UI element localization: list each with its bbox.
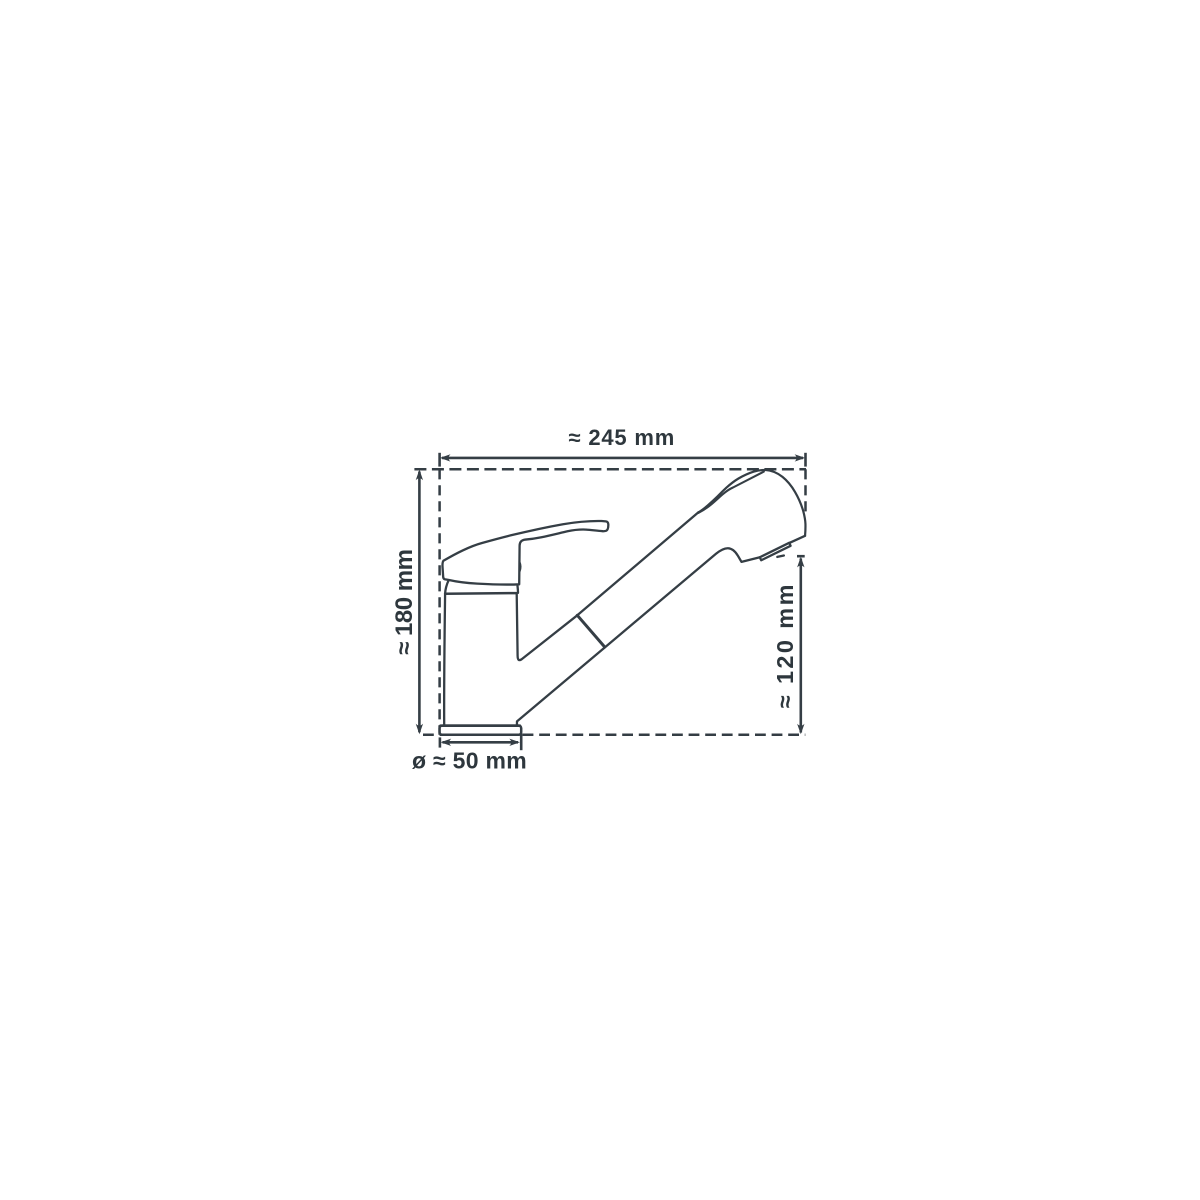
svg-text:≈ 120 mm: ≈ 120 mm — [772, 582, 798, 708]
svg-text:≈ 180 mm: ≈ 180 mm — [391, 550, 418, 655]
svg-text:ø ≈ 50 mm: ø ≈ 50 mm — [412, 748, 527, 774]
svg-text:≈ 245 mm: ≈ 245 mm — [569, 425, 676, 450]
